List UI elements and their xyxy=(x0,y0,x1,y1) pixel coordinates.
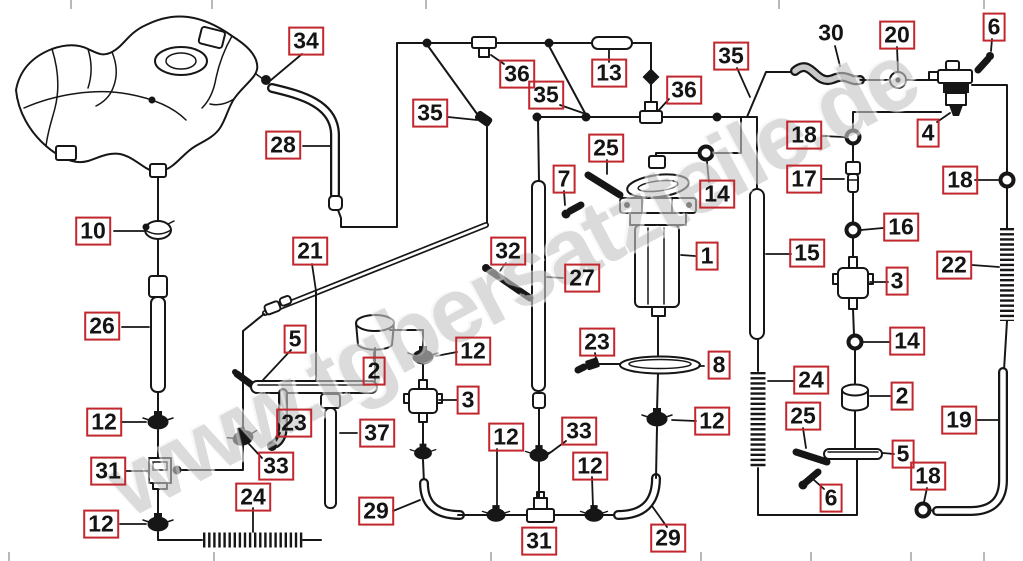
part-callout-15: 15 xyxy=(789,239,825,268)
margin-tick xyxy=(983,0,985,9)
margin-tick xyxy=(778,0,780,9)
part-callout-30: 30 xyxy=(813,19,849,48)
part-callout-7: 7 xyxy=(553,165,576,194)
margin-tick xyxy=(70,0,72,9)
part-callout-24: 24 xyxy=(793,366,829,395)
margin-tick xyxy=(810,552,812,561)
part-callout-24: 24 xyxy=(235,483,271,512)
part-callout-25: 25 xyxy=(588,134,624,163)
part-callout-33: 33 xyxy=(561,417,597,446)
part-callout-20: 20 xyxy=(879,21,915,50)
part-callout-37: 37 xyxy=(359,419,395,448)
part-callout-26: 26 xyxy=(84,312,120,341)
margin-tick xyxy=(8,552,10,561)
part-callout-10: 10 xyxy=(75,217,111,246)
part-callout-17: 17 xyxy=(786,165,822,194)
part-callout-32: 32 xyxy=(490,237,526,266)
part-callout-36: 36 xyxy=(666,76,702,105)
part-callout-16: 16 xyxy=(883,213,919,242)
part-callout-3: 3 xyxy=(457,386,480,415)
part-callout-35: 35 xyxy=(713,42,749,71)
margin-tick xyxy=(983,552,985,561)
part-callout-18: 18 xyxy=(942,166,978,195)
part-callout-5: 5 xyxy=(284,325,307,354)
part-callout-12: 12 xyxy=(694,407,730,436)
part-callout-2: 2 xyxy=(891,382,914,411)
part-callout-18: 18 xyxy=(910,462,946,491)
part-callout-18: 18 xyxy=(786,121,822,150)
part-callout-6: 6 xyxy=(820,484,843,513)
part-callout-12: 12 xyxy=(83,510,119,539)
part-callout-35: 35 xyxy=(412,99,448,128)
part-callout-27: 27 xyxy=(564,264,600,293)
part-callout-4: 4 xyxy=(917,119,940,148)
margin-tick xyxy=(910,552,912,561)
part-callout-14: 14 xyxy=(889,327,925,356)
margin-tick xyxy=(211,0,213,9)
part-callout-35: 35 xyxy=(528,81,564,110)
margin-tick xyxy=(425,0,427,9)
margin-tick xyxy=(700,552,702,561)
margin-tick xyxy=(490,552,492,561)
part-callout-29: 29 xyxy=(650,524,686,553)
part-callout-34: 34 xyxy=(288,27,324,56)
part-callout-12: 12 xyxy=(572,452,608,481)
part-callout-22: 22 xyxy=(936,251,972,280)
part-callout-23: 23 xyxy=(579,328,615,357)
part-callout-21: 21 xyxy=(292,237,328,266)
part-callout-33: 33 xyxy=(258,452,294,481)
part-callout-2: 2 xyxy=(363,357,386,386)
fuel-tank-drawing xyxy=(16,16,271,177)
part-callout-31: 31 xyxy=(521,527,557,556)
parts-diagram-image: www.tgbersatzteile.de 346203035133636353… xyxy=(0,0,1023,561)
part-callout-29: 29 xyxy=(358,497,394,526)
part-callout-12: 12 xyxy=(488,423,524,452)
part-callout-12: 12 xyxy=(455,337,491,366)
part-callout-13: 13 xyxy=(591,59,627,88)
margin-tick xyxy=(213,552,215,561)
part-callout-6: 6 xyxy=(983,13,1006,42)
part-callout-31: 31 xyxy=(90,457,126,486)
part-callout-25: 25 xyxy=(785,402,821,431)
part-callout-23: 23 xyxy=(276,409,312,438)
part-callout-28: 28 xyxy=(265,131,301,160)
part-callout-12: 12 xyxy=(86,408,122,437)
part-callout-8: 8 xyxy=(708,351,731,380)
part-callout-19: 19 xyxy=(941,406,977,435)
part-callout-1: 1 xyxy=(696,242,719,271)
part-callout-3: 3 xyxy=(886,267,909,296)
part-callout-14: 14 xyxy=(699,180,735,209)
